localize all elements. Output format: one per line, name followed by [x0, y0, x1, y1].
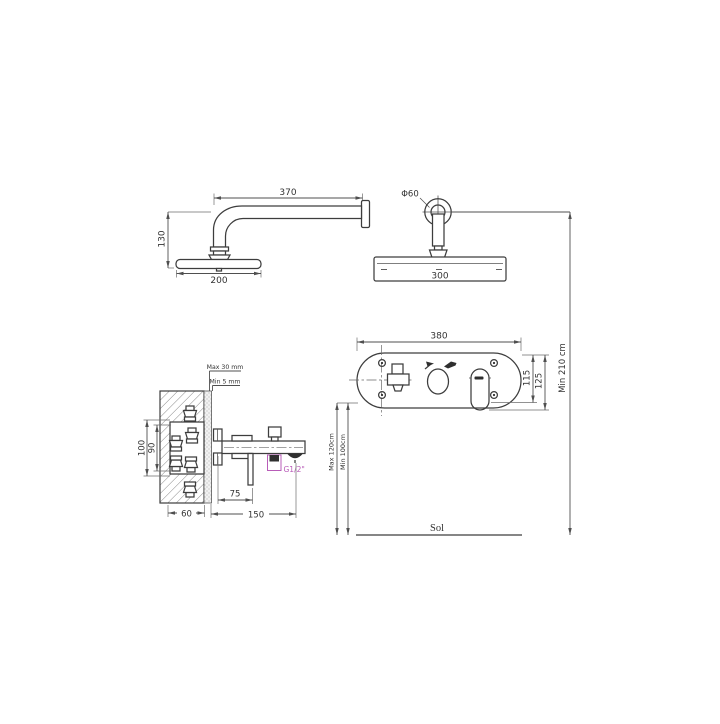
- dim-head-diameter: 200: [210, 276, 227, 286]
- dim-flange-diameter: Φ60: [401, 190, 419, 200]
- shower-head-side: [176, 260, 261, 269]
- diverter-pull-knob: [269, 427, 282, 437]
- floor-label: Sol: [430, 523, 444, 534]
- dim-plate-height-outer: 125: [535, 373, 545, 389]
- drop-arm-front: [433, 214, 445, 246]
- spout-bracket: [248, 454, 253, 486]
- dim-plate-height-max: Max 120cm: [328, 433, 336, 471]
- finish-wall-layer: [204, 391, 212, 503]
- finish-max-label: Max 30 mm: [207, 364, 244, 371]
- dim-plate-width: 380: [430, 332, 447, 342]
- shower-installation-diagram: 370 130 200 Φ60 300: [0, 0, 720, 720]
- dim-head-height: Min 210 cm: [558, 343, 568, 393]
- canvas-background: [0, 0, 720, 720]
- thread-label: G1/2": [284, 465, 305, 474]
- dim-head-width: 300: [431, 272, 448, 282]
- technical-drawing-page: 370 130 200 Φ60 300: [0, 0, 720, 720]
- dim-plate-height-min: Min 100cm: [339, 434, 347, 470]
- dim-box-height-inner: 90: [148, 443, 158, 454]
- dim-box-height-outer: 100: [138, 440, 148, 456]
- dim-wall-depth: 60: [181, 510, 192, 520]
- dim-arm-length: 370: [279, 188, 296, 198]
- dim-spout-length: 150: [248, 511, 264, 521]
- dim-plate-height-inner: 115: [523, 370, 533, 386]
- wall-flange: [362, 201, 370, 228]
- dim-spout-offset: 75: [230, 490, 241, 500]
- dim-drop-height: 130: [158, 230, 168, 247]
- finish-min-label: Min 5 mm: [210, 379, 241, 386]
